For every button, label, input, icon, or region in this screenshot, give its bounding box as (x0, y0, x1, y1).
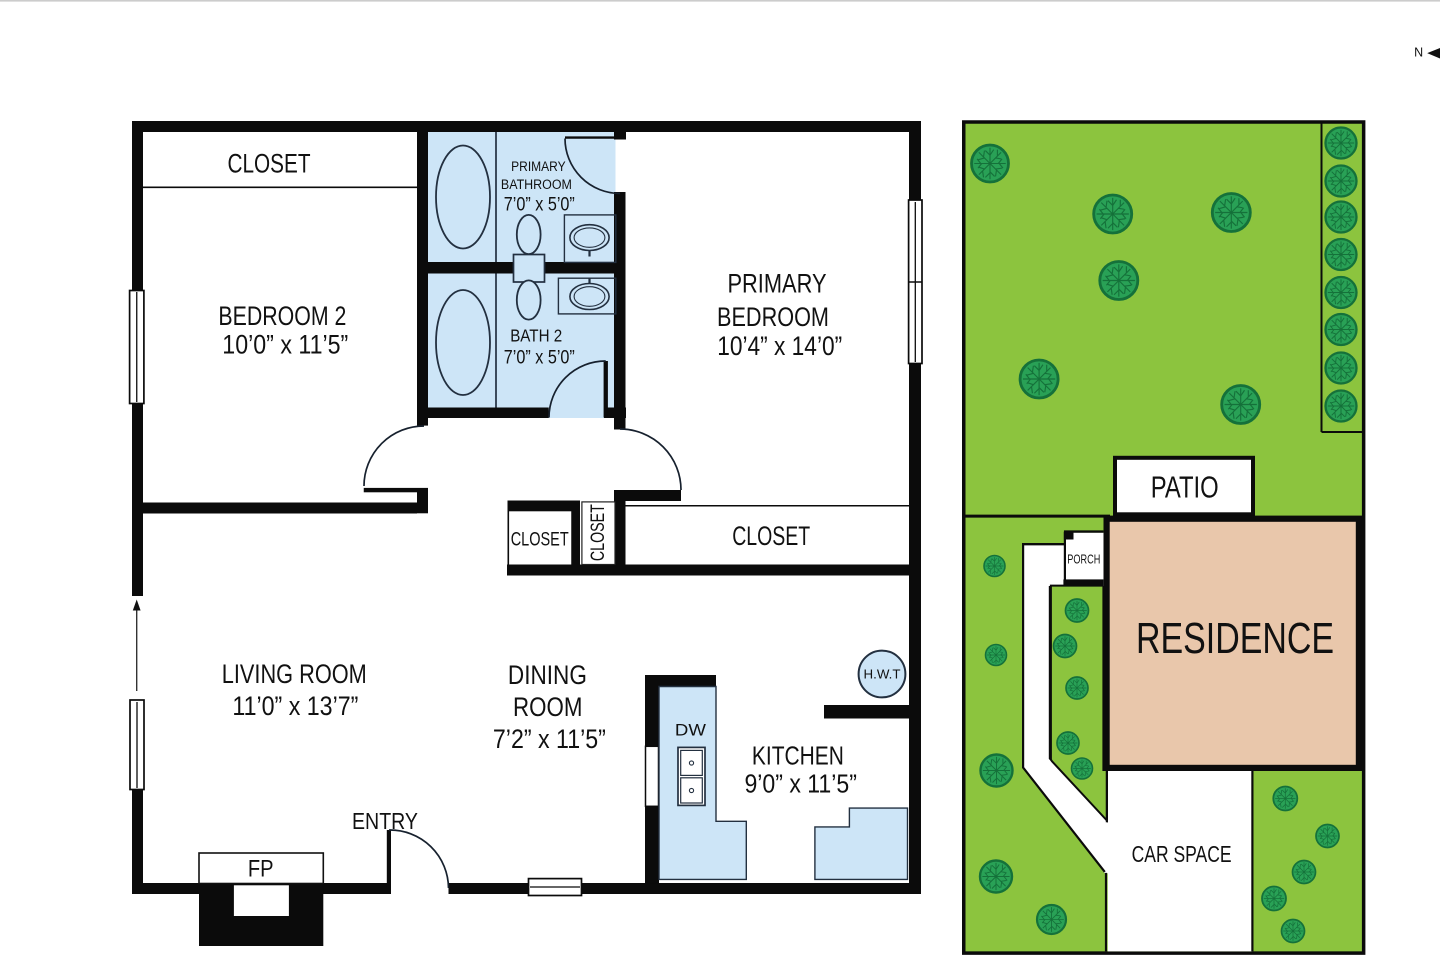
svg-text:CLOSET: CLOSET (732, 521, 810, 551)
svg-text:PRIMARY: PRIMARY (511, 159, 566, 174)
svg-text:7’0” x 5’0”: 7’0” x 5’0” (504, 195, 575, 216)
svg-text:KITCHEN: KITCHEN (752, 743, 844, 771)
svg-text:CLOSET: CLOSET (228, 149, 311, 179)
svg-text:DINING: DINING (508, 660, 587, 690)
svg-text:CLOSET: CLOSET (511, 528, 569, 550)
svg-text:DW: DW (675, 720, 706, 739)
svg-text:11’0” x 13’7”: 11’0” x 13’7” (232, 691, 358, 721)
svg-text:CLOSET: CLOSET (587, 504, 609, 561)
svg-text:PORCH: PORCH (1067, 553, 1100, 567)
svg-text:10’4” x 14’0”: 10’4” x 14’0” (717, 331, 842, 361)
svg-text:9’0” x 11’5”: 9’0” x 11’5” (744, 771, 857, 799)
svg-text:FP: FP (248, 857, 274, 883)
svg-text:BEDROOM: BEDROOM (717, 302, 829, 332)
svg-text:LIVING ROOM: LIVING ROOM (222, 659, 367, 689)
svg-text:ENTRY: ENTRY (352, 808, 418, 834)
svg-text:PATIO: PATIO (1151, 471, 1219, 505)
svg-text:RESIDENCE: RESIDENCE (1136, 615, 1334, 663)
svg-text:BEDROOM 2: BEDROOM 2 (218, 301, 346, 331)
svg-text:BATH 2: BATH 2 (510, 326, 562, 346)
svg-text:CAR SPACE: CAR SPACE (1132, 841, 1232, 867)
svg-text:ROOM: ROOM (513, 692, 582, 722)
svg-text:7’0” x 5’0”: 7’0” x 5’0” (504, 347, 575, 368)
svg-text:N: N (1414, 45, 1423, 59)
svg-text:7’2” x 11’5”: 7’2” x 11’5” (493, 724, 606, 754)
svg-text:BATHROOM: BATHROOM (501, 177, 572, 192)
svg-text:H.W.T: H.W.T (864, 667, 901, 682)
svg-text:PRIMARY: PRIMARY (728, 269, 827, 299)
svg-text:10’0” x 11’5”: 10’0” x 11’5” (222, 330, 348, 360)
